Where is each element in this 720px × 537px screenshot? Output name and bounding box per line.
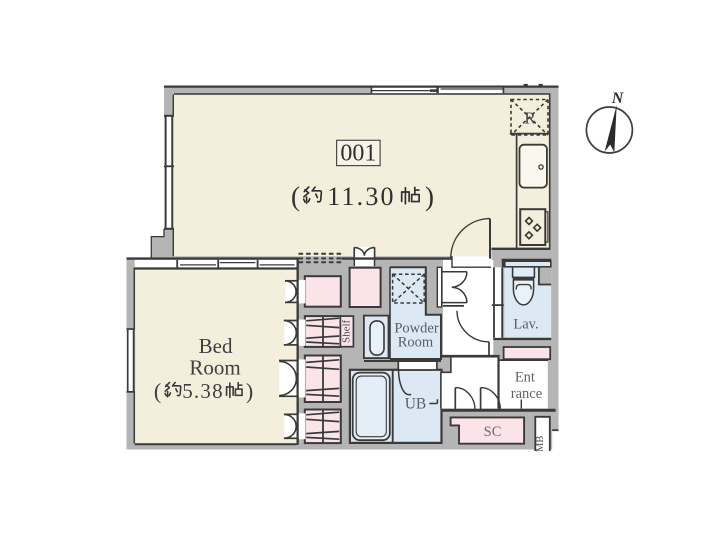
svg-text:11.30: 11.30: [327, 182, 396, 211]
svg-text:(: (: [154, 379, 161, 404]
svg-text:): ): [246, 379, 253, 404]
svg-text:N: N: [611, 90, 625, 107]
svg-text:Lav.: Lav.: [513, 316, 538, 332]
svg-text:(: (: [291, 182, 300, 212]
svg-text:Room: Room: [189, 355, 240, 379]
svg-text:UB: UB: [405, 396, 427, 413]
svg-text:001: 001: [340, 141, 376, 167]
svg-text:): ): [425, 182, 434, 212]
svg-text:Bed: Bed: [199, 334, 233, 358]
svg-text:5.38: 5.38: [182, 379, 224, 403]
svg-text:Room: Room: [398, 334, 434, 350]
svg-text:rance: rance: [511, 386, 542, 402]
svg-text:Shelf: Shelf: [341, 319, 353, 343]
svg-text:R: R: [524, 109, 536, 128]
svg-text:SC: SC: [484, 424, 502, 440]
svg-text:Ent: Ent: [515, 370, 535, 386]
svg-text:MB: MB: [535, 436, 546, 452]
